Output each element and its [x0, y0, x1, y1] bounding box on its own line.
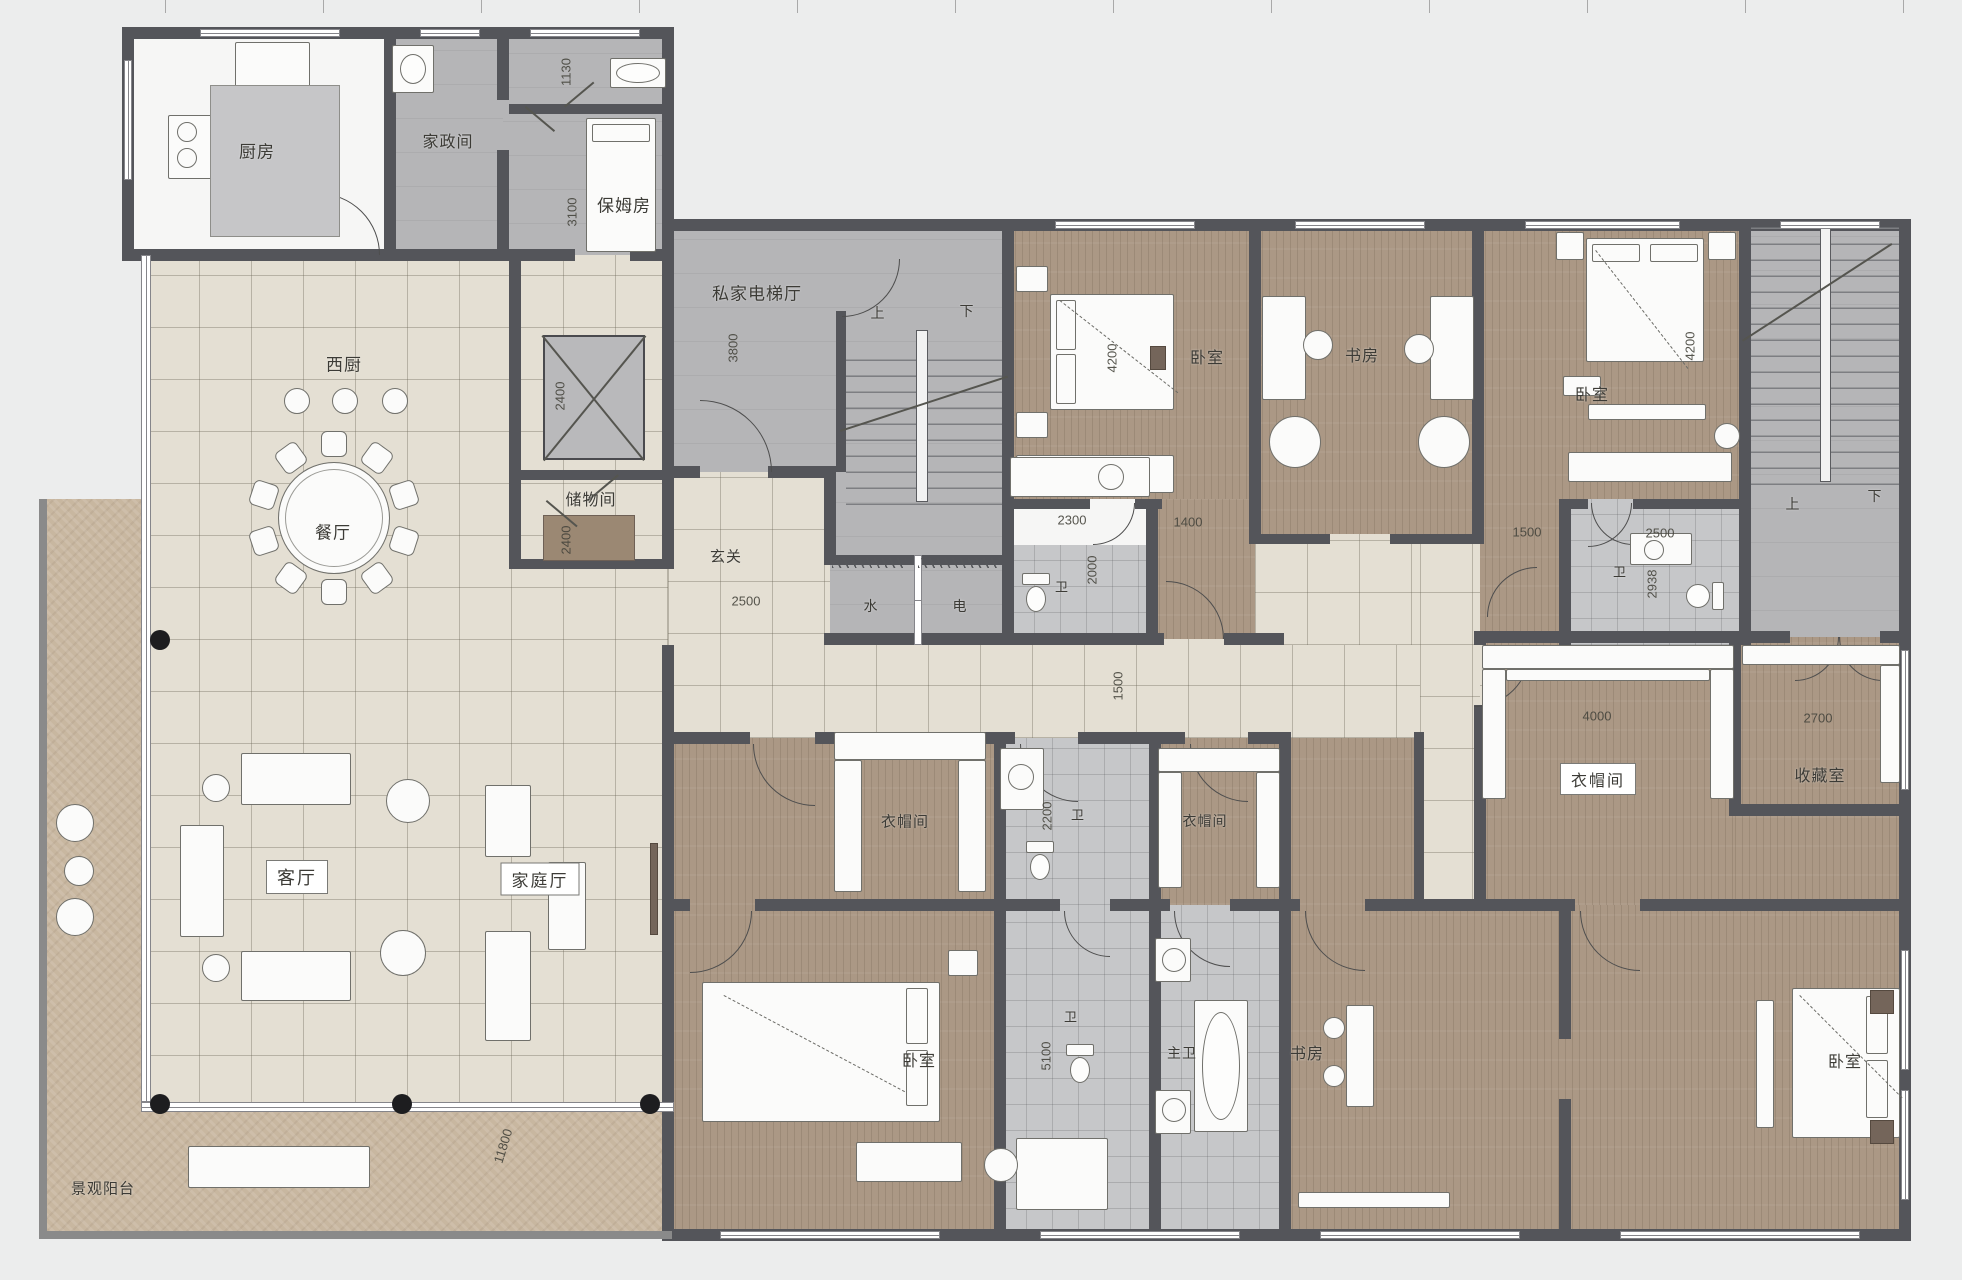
stool — [284, 388, 310, 414]
wall — [662, 732, 674, 1241]
wall — [662, 27, 674, 478]
tub-chair — [1418, 416, 1470, 468]
wall — [824, 633, 1164, 645]
dimension-dim-corridor: 1500 — [1111, 672, 1126, 701]
nightstand — [1556, 232, 1584, 260]
wall — [1739, 219, 1751, 645]
ruler-tick — [1429, 0, 1430, 13]
tv — [650, 843, 658, 935]
toilet-bowl — [1686, 584, 1710, 608]
dimension-dim-closet3: 4000 — [1583, 709, 1612, 724]
dimension-dim-nanny-depth: 3100 — [565, 198, 580, 227]
room-label-closet-2: 衣帽间 — [1183, 811, 1228, 831]
louver-door-icon — [832, 558, 906, 568]
chair — [1323, 1017, 1345, 1039]
wardrobe — [1482, 645, 1734, 669]
window — [914, 555, 922, 645]
stair-rail — [916, 330, 928, 502]
side-table — [984, 1148, 1018, 1182]
dining-chair — [321, 579, 347, 605]
sofa — [241, 753, 351, 805]
wall — [662, 645, 674, 744]
room-label-bath-1: 卫 — [1055, 577, 1069, 596]
room-label-water-meter: 水 — [864, 596, 879, 616]
balcony-chair — [56, 804, 94, 842]
kitchen-island — [210, 85, 340, 237]
nanny-pillow — [592, 124, 650, 142]
room-label-bedroom-1: 卧室 — [1190, 344, 1224, 368]
dimension-dim-mid-bath: 5100 — [1039, 1042, 1054, 1071]
room-label-bath-2: 卫 — [1613, 562, 1627, 581]
room-label-dining-room: 餐厅 — [315, 519, 351, 544]
ruler-tick — [165, 0, 166, 13]
wardrobe — [1256, 772, 1280, 888]
wardrobe-shelf — [1506, 669, 1710, 681]
lounge-chair — [386, 779, 430, 823]
dimension-dim-bath2-width: 2500 — [1646, 526, 1675, 541]
ruler-tick — [1745, 0, 1746, 13]
floor-corridor-strip — [1420, 534, 1480, 905]
window — [530, 29, 640, 37]
column — [150, 630, 170, 650]
wall — [662, 732, 750, 744]
burner — [177, 148, 197, 168]
window — [1320, 1231, 1520, 1239]
kitchen-counter — [235, 42, 310, 87]
wall — [1390, 534, 1480, 544]
sofa — [485, 931, 531, 1041]
window — [1901, 650, 1909, 790]
wall — [497, 27, 509, 100]
tub-basin — [616, 63, 660, 83]
ruler-tick — [323, 0, 324, 13]
basin — [1008, 764, 1034, 790]
dimension-dim-foyer: 2500 — [732, 594, 761, 609]
sofa — [241, 951, 351, 1001]
room-label-master-bath: 主卫 — [1167, 1043, 1197, 1063]
bed4-bench — [1756, 1000, 1774, 1128]
wall — [1365, 899, 1575, 911]
toilet-bowl — [1070, 1057, 1090, 1083]
stair-rail — [1820, 227, 1831, 482]
room-label-nanny-room: 保姆房 — [597, 192, 651, 217]
dimension-dim-collection: 2700 — [1804, 711, 1833, 726]
wall — [497, 150, 509, 261]
wall — [1224, 633, 1284, 645]
desk — [1262, 296, 1306, 400]
room-label-stair2-down: 下 — [1868, 486, 1883, 506]
bed4-pillow — [1866, 1060, 1888, 1118]
window — [141, 255, 151, 1102]
wardrobe — [1710, 669, 1734, 799]
dimension-dim-nanny-width: 1130 — [559, 58, 574, 86]
room-label-private-elevator-hall: 私家电梯厅 — [712, 280, 802, 305]
side-table — [202, 954, 230, 982]
room-label-study-1: 书房 — [1345, 342, 1379, 366]
room-label-stair1-down: 下 — [960, 301, 975, 321]
wall — [1559, 1099, 1571, 1241]
dimension-dim-bedroom2: 4200 — [1683, 332, 1698, 361]
window — [200, 29, 340, 37]
dresser — [1568, 452, 1732, 482]
room-label-closet-suite-left: 衣帽间 — [881, 811, 929, 832]
shelf — [1298, 1192, 1450, 1208]
shower — [1016, 1138, 1108, 1210]
wardrobe — [834, 760, 862, 892]
room-label-electric-meter: 电 — [953, 596, 968, 616]
dimension-dim-storage: 2400 — [559, 526, 574, 555]
dimension-dim-bath2-depth: 2938 — [1645, 570, 1660, 599]
tv — [1150, 346, 1166, 370]
ruler-tick — [639, 0, 640, 13]
room-label-kitchen: 厨房 — [239, 138, 275, 163]
ruler-tick — [1587, 0, 1588, 13]
room-label-family-room: 家庭厅 — [501, 863, 580, 896]
balcony-edge — [39, 499, 47, 1239]
ruler-tick — [1271, 0, 1272, 13]
floor-plan: 厨房家政间保姆房私家电梯厅西厨餐厅储物间玄关水电卧室书房卧室卫卫上下上下客厅家庭… — [0, 0, 1962, 1280]
wall — [1002, 219, 1014, 645]
sofa — [485, 785, 531, 857]
room-label-bedroom-4: 卧室 — [1828, 1048, 1862, 1072]
side-table — [202, 774, 230, 802]
balcony-table — [64, 856, 94, 886]
column — [392, 1094, 412, 1114]
room-label-west-kitchen: 西厨 — [326, 351, 362, 376]
window — [420, 29, 480, 37]
basin — [1098, 464, 1124, 490]
desk — [1430, 296, 1474, 400]
room-label-bath-guest: 卫 — [1071, 805, 1085, 824]
room-label-storage-room: 储物间 — [565, 486, 616, 510]
wall — [1002, 499, 1090, 509]
wall — [755, 899, 1005, 911]
wall — [1000, 899, 1060, 911]
ruler-tick — [955, 0, 956, 13]
toilet-tank — [1066, 1044, 1094, 1056]
wardrobe — [958, 760, 986, 892]
dimension-dim-guest-bath: 2200 — [1040, 802, 1055, 831]
wardrobe — [1482, 669, 1506, 799]
dimension-dim-elevator: 2400 — [553, 382, 568, 411]
stool — [332, 388, 358, 414]
storage-cabinet — [543, 515, 635, 561]
wall — [836, 311, 846, 472]
tub-basin — [1202, 1012, 1240, 1120]
room-label-view-balcony: 景观阳台 — [71, 1178, 135, 1199]
stool — [382, 388, 408, 414]
ruler-tick — [797, 0, 798, 13]
side-table — [1714, 423, 1740, 449]
window — [720, 1231, 940, 1239]
bed2-bench — [1588, 404, 1706, 420]
toilet-bowl — [1030, 854, 1050, 880]
wardrobe — [1158, 748, 1280, 772]
chair — [1404, 334, 1434, 364]
nightstand — [1708, 232, 1736, 260]
nightstand — [1016, 412, 1048, 438]
wall — [515, 249, 575, 261]
room-label-bath-mid: 卫 — [1064, 1007, 1078, 1026]
room-label-study-2: 书房 — [1290, 1040, 1324, 1064]
window — [1901, 950, 1909, 1070]
bed1-pillow — [1056, 354, 1076, 404]
wall — [1559, 499, 1571, 645]
toilet-bowl — [1026, 586, 1046, 612]
wall — [1110, 899, 1170, 911]
room-label-bedroom-3: 卧室 — [902, 1047, 936, 1071]
dimension-dim-elevator-hall: 3800 — [726, 334, 741, 363]
window — [1525, 221, 1680, 229]
sink-basin — [400, 54, 426, 84]
floor-anteroom — [1285, 738, 1420, 905]
toilet-tank — [1712, 582, 1724, 610]
bed2-pillow — [1592, 244, 1640, 262]
bed3-pillow — [906, 988, 928, 1044]
column — [150, 1094, 170, 1114]
wall — [1249, 219, 1261, 544]
balcony-chair — [56, 898, 94, 936]
dimension-dim-bath1-width: 2300 — [1058, 513, 1087, 528]
chair — [1323, 1065, 1345, 1087]
dark-cushion — [1870, 1120, 1894, 1144]
room-label-closet-3: 衣帽间 — [1560, 763, 1636, 795]
dimension-dim-bedroom1: 4200 — [1105, 344, 1120, 373]
wall — [1279, 732, 1291, 1241]
nightstand — [948, 950, 978, 976]
wall — [662, 219, 1911, 231]
wall — [1146, 499, 1158, 645]
chair — [1303, 330, 1333, 360]
wall — [1414, 732, 1424, 911]
dark-cushion — [1870, 990, 1894, 1014]
room-label-bedroom-2: 卧室 — [1575, 381, 1609, 405]
window — [1620, 1231, 1860, 1239]
wall — [509, 470, 674, 480]
room-label-living-room: 客厅 — [266, 860, 328, 894]
ruler-tick — [1113, 0, 1114, 13]
room-label-stair1-up: 上 — [871, 303, 886, 323]
wardrobe — [834, 732, 986, 760]
toilet-tank — [1026, 841, 1054, 853]
toilet-tank — [1022, 573, 1050, 585]
sofa — [180, 825, 224, 937]
ruler-tick — [481, 0, 482, 13]
lounge-chair — [380, 930, 426, 976]
basin — [1162, 948, 1186, 972]
dimension-dim-closet1400: 1400 — [1174, 515, 1203, 530]
basin — [1644, 540, 1664, 560]
column — [640, 1094, 660, 1114]
louver-door-icon — [918, 558, 1000, 568]
floor-corridor — [824, 639, 1484, 738]
window — [124, 60, 132, 180]
window — [1055, 221, 1195, 229]
room-label-foyer: 玄关 — [710, 546, 742, 567]
dining-chair — [321, 431, 347, 457]
wall — [1078, 732, 1185, 744]
dimension-dim-bath1-depth: 2000 — [1085, 556, 1100, 585]
bed2-pillow — [1650, 244, 1698, 262]
wall — [824, 466, 836, 565]
window — [1780, 221, 1880, 229]
collection-shelf — [1880, 665, 1900, 783]
wardrobe — [1158, 772, 1182, 888]
wall — [662, 466, 674, 566]
burner — [177, 122, 197, 142]
window — [1040, 1231, 1240, 1239]
tub-chair — [1269, 416, 1321, 468]
wall — [1640, 899, 1911, 911]
window — [1901, 1090, 1909, 1200]
wall — [1559, 899, 1571, 1039]
room-label-stair2-up: 上 — [1786, 494, 1801, 514]
wall — [509, 255, 521, 569]
balcony-edge — [39, 1231, 672, 1239]
room-label-collection-room: 收藏室 — [1794, 762, 1845, 786]
wall — [1729, 804, 1911, 816]
wall — [1633, 499, 1751, 509]
wall — [1249, 534, 1330, 544]
room-label-housekeeping-room: 家政间 — [422, 128, 473, 152]
balcony-bench — [188, 1146, 370, 1188]
bed1-pillow — [1056, 300, 1076, 350]
ruler-tick — [1903, 0, 1904, 13]
chaise — [856, 1142, 962, 1182]
nightstand — [1016, 266, 1048, 292]
wall — [1474, 631, 1486, 645]
dimension-dim-lobby2: 1500 — [1513, 525, 1542, 540]
desk — [1346, 1005, 1374, 1107]
basin — [1162, 1098, 1186, 1122]
collection-shelf — [1742, 645, 1900, 665]
vanity — [1010, 457, 1150, 497]
window — [1295, 221, 1425, 229]
